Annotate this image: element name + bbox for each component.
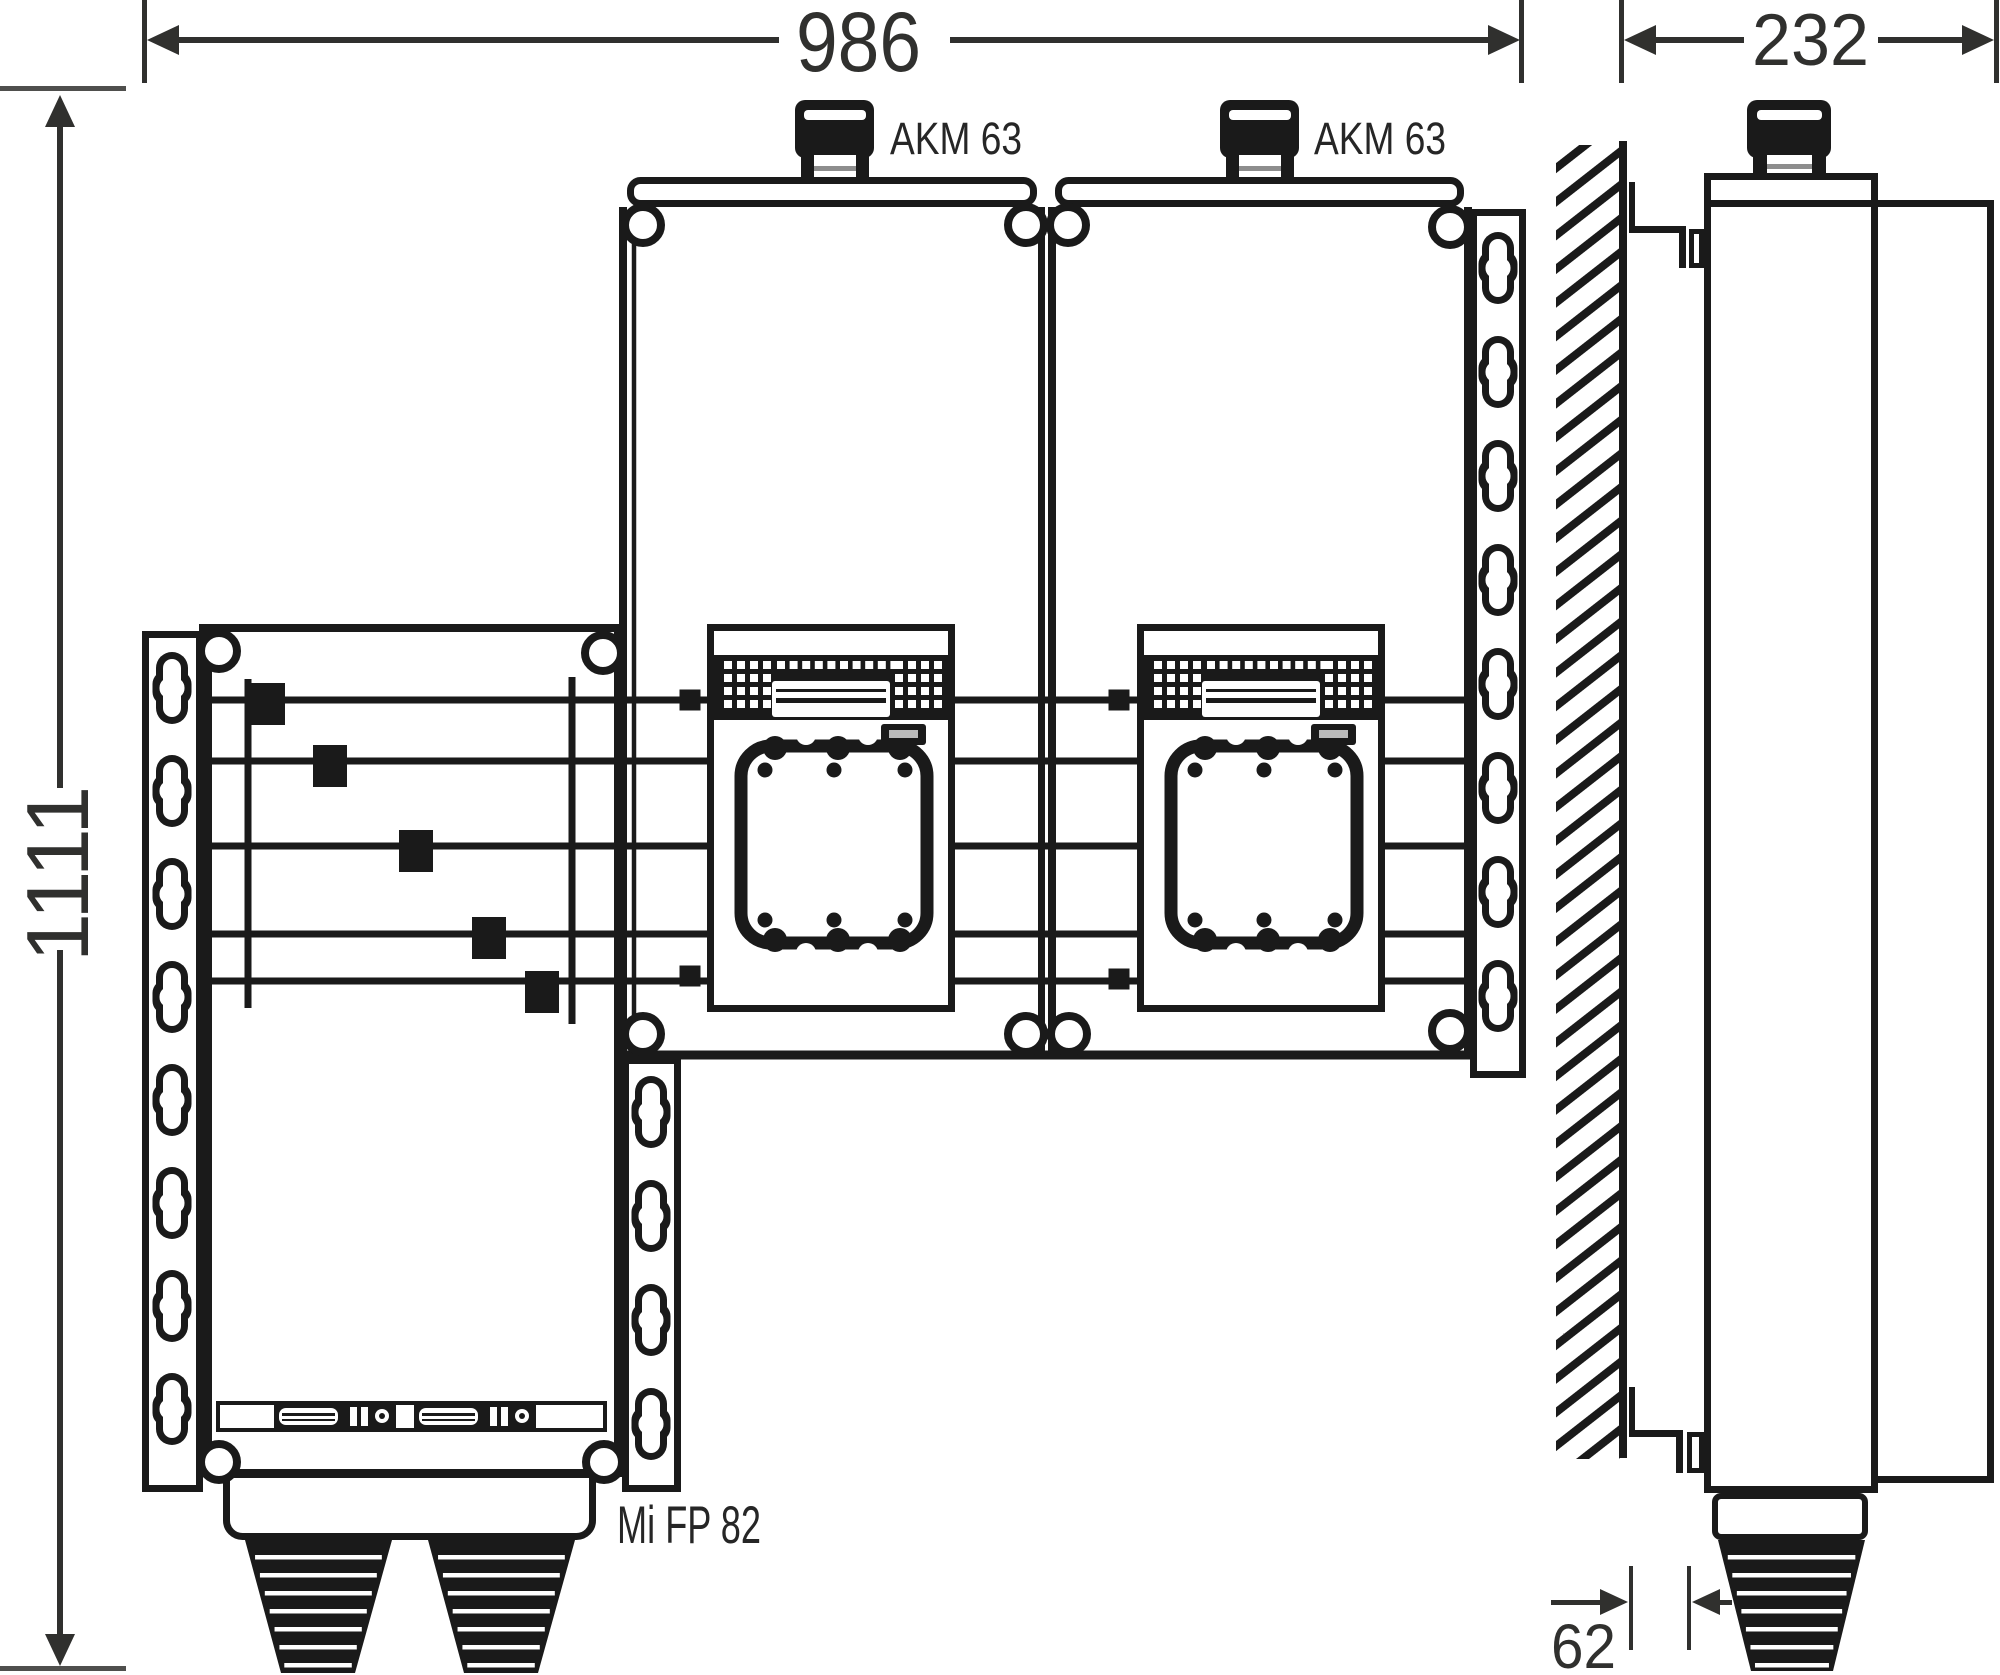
svg-text:62: 62 <box>1551 1612 1616 1675</box>
svg-text:Mi FP 82: Mi FP 82 <box>617 1496 761 1555</box>
svg-text:232: 232 <box>1752 0 1869 81</box>
svg-text:986: 986 <box>796 0 921 89</box>
svg-text:AKM 63: AKM 63 <box>890 113 1022 164</box>
svg-text:AKM 63: AKM 63 <box>1314 113 1446 164</box>
svg-text:1111: 1111 <box>8 786 107 962</box>
